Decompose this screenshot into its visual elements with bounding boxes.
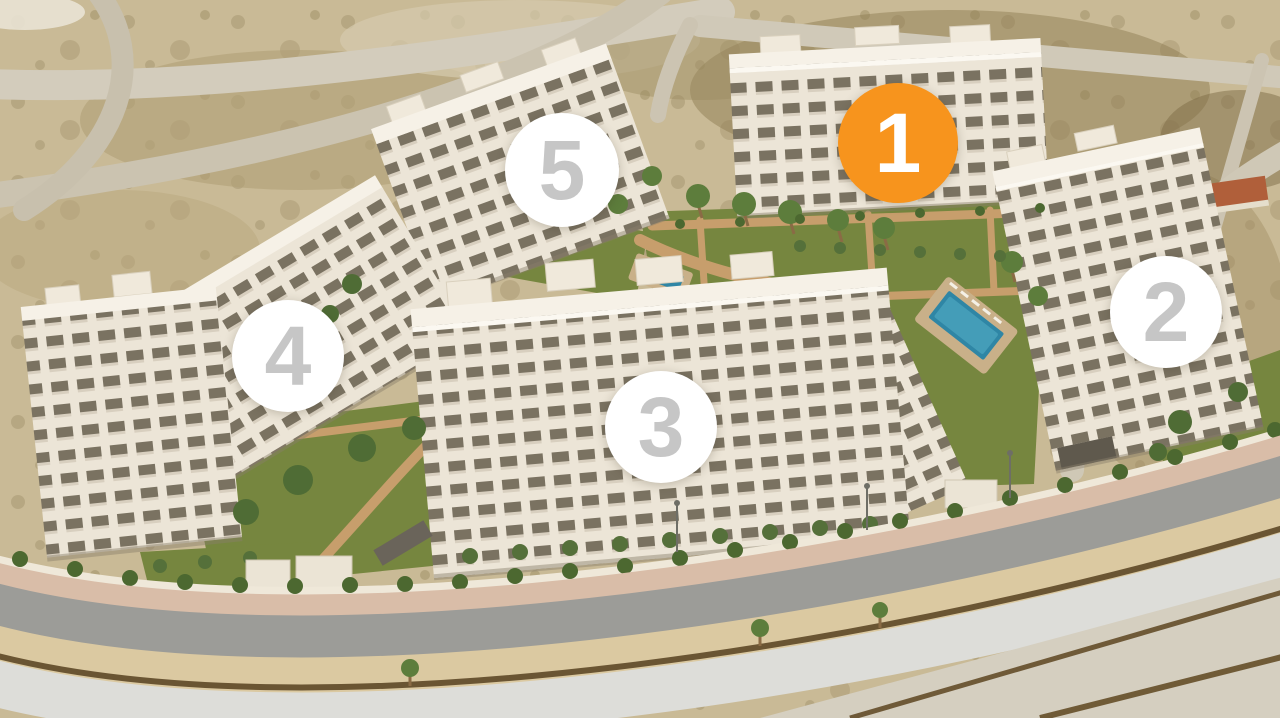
phase-badge-4-number: 4 xyxy=(265,314,312,398)
median-tree xyxy=(401,659,419,677)
median-tree xyxy=(751,619,769,637)
phase-badge-3-number: 3 xyxy=(638,385,685,469)
phase-badge-3[interactable]: 3 xyxy=(605,371,717,483)
median-tree xyxy=(872,602,888,618)
phase-badge-5-number: 5 xyxy=(539,128,586,212)
phase-badge-2[interactable]: 2 xyxy=(1110,256,1222,368)
building-4 xyxy=(18,265,242,562)
phase-badge-1-number: 1 xyxy=(875,101,922,185)
phase-badge-2-number: 2 xyxy=(1143,270,1190,354)
aerial-scene xyxy=(0,0,1280,718)
phase-badge-5[interactable]: 5 xyxy=(505,113,619,227)
site-render: 1 2 3 4 5 xyxy=(0,0,1280,718)
phase-badge-1[interactable]: 1 xyxy=(838,83,958,203)
phase-badge-4[interactable]: 4 xyxy=(232,300,344,412)
